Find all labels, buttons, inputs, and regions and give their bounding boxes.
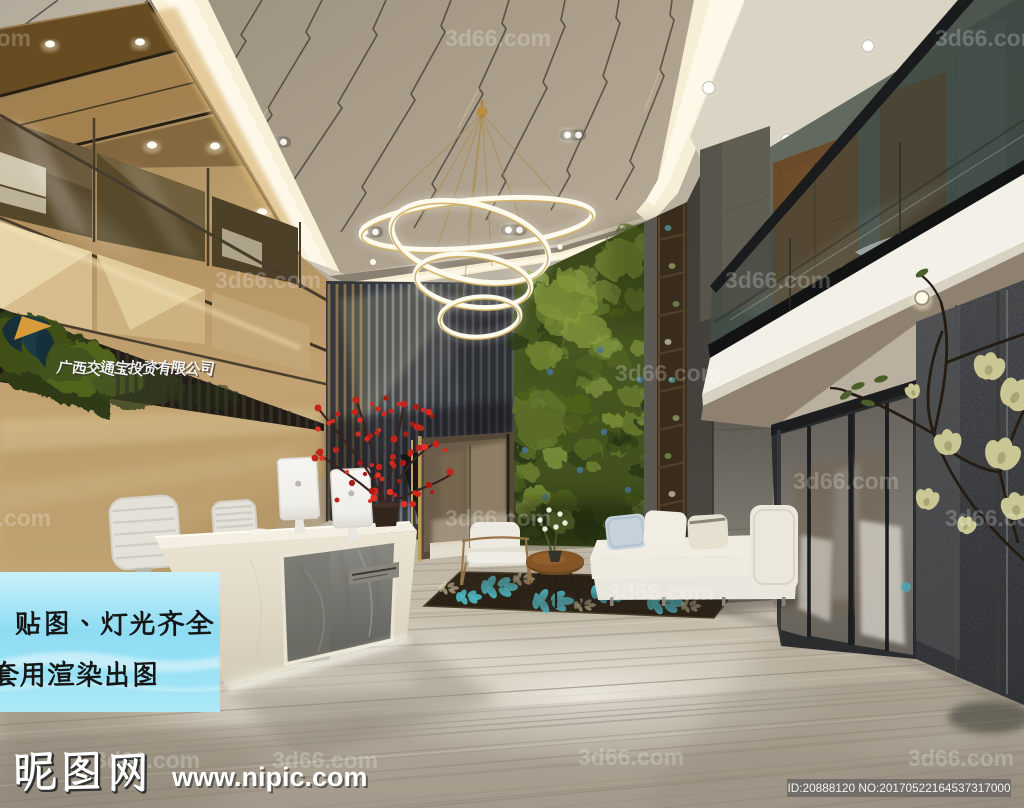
svg-text:3d66.com: 3d66.com: [615, 360, 721, 386]
svg-text:www.nipic.com: www.nipic.com: [171, 762, 368, 792]
svg-text:3d66.com: 3d66.com: [215, 267, 321, 293]
svg-text:3d66.com: 3d66.com: [578, 744, 684, 770]
svg-text:ID:20888120 NO:201705221645373: ID:20888120 NO:20170522164537317000: [787, 781, 1010, 795]
svg-text:3d66.com: 3d66.com: [0, 505, 51, 531]
svg-text:3d66.com: 3d66.com: [908, 745, 1014, 771]
svg-text:3d66.com: 3d66.com: [445, 25, 551, 51]
svg-text:3d66.com: 3d66.com: [935, 25, 1024, 51]
svg-text:3d66.com: 3d66.com: [608, 579, 714, 605]
svg-text:3d66.com: 3d66.com: [725, 267, 831, 293]
svg-text:3d66.com: 3d66.com: [793, 468, 899, 494]
svg-text:3d66.com: 3d66.com: [945, 505, 1024, 531]
svg-text:3d66.com: 3d66.com: [445, 505, 551, 531]
svg-text:3d66.com: 3d66.com: [0, 25, 31, 51]
